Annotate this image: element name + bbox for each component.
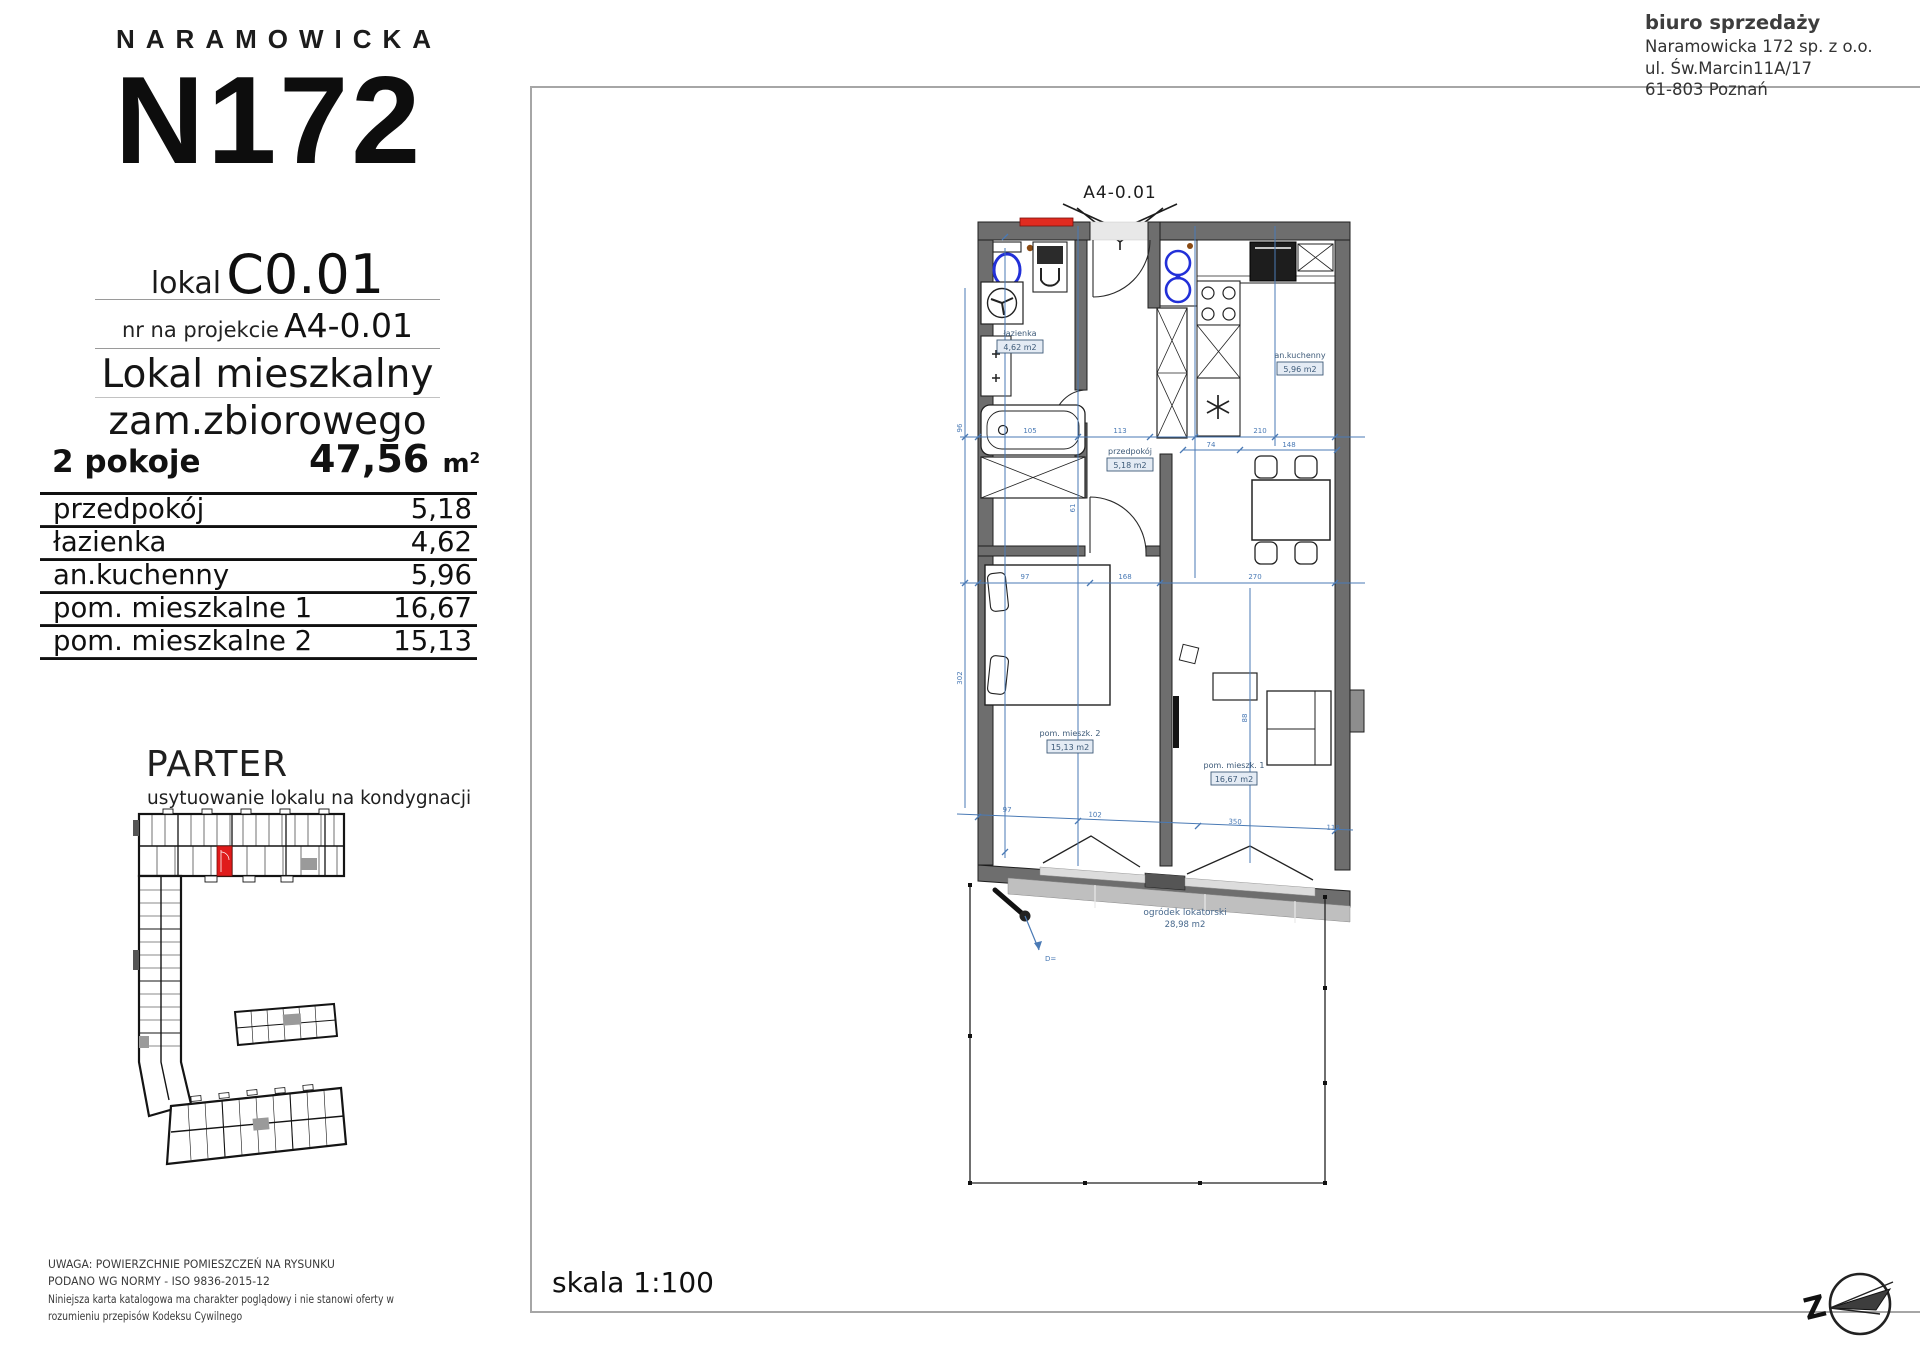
table-row: pom. mieszkalne 1 16,67 <box>40 594 477 627</box>
compass-letter: Z <box>1800 1289 1830 1328</box>
valve-dot <box>1187 243 1193 249</box>
window-pier <box>1145 873 1185 890</box>
unit-number-line: lokal C0.01 <box>95 243 440 306</box>
entrance-marker-label: A4-0.01 <box>1083 183 1156 203</box>
svg-text:119: 119 <box>1326 824 1340 833</box>
compass: Z <box>1800 1262 1910 1352</box>
building-location-minimap <box>133 800 348 1172</box>
table-row: pom. mieszkalne 2 15,13 <box>40 627 477 660</box>
table-row: przedpokój 5,18 <box>40 495 477 528</box>
kitchen-fixtures <box>1157 240 1335 438</box>
chair-icon <box>1255 456 1277 478</box>
brand-name: NARAMOWICKA <box>116 24 446 55</box>
svg-text:5,18 m2: 5,18 m2 <box>1113 461 1146 470</box>
office-street: ul. Św.Marcin11A/17 <box>1645 58 1873 80</box>
chair-icon <box>1255 542 1277 564</box>
divider <box>95 299 440 300</box>
room-area: 5,96 <box>411 561 472 589</box>
svg-text:88: 88 <box>1241 714 1249 723</box>
disclaimer-line: rozumieniu przepisów Kodeksu Cywilnego <box>48 1308 320 1325</box>
svg-text:102: 102 <box>1088 811 1102 820</box>
project-number-label: nr na projekcie <box>122 318 279 342</box>
bathroom-fixtures <box>981 242 1085 498</box>
disclaimer-line: UWAGA: POWIERZCHNIE POMIESZCZEŃ NA RYSUN… <box>48 1256 364 1273</box>
room1-label: pom. mieszk. 1 16,67 m2 <box>1204 761 1265 785</box>
hall-label: przedpokój 5,18 m2 <box>1107 446 1153 471</box>
room-door <box>1090 497 1146 553</box>
svg-text:61: 61 <box>1069 504 1077 513</box>
frame-left-border <box>530 86 532 1313</box>
area-unit-sup: 2 <box>470 449 480 467</box>
svg-text:an.kuchenny: an.kuchenny <box>1274 351 1326 360</box>
divider <box>95 348 440 349</box>
room-name: pom. mieszkalne 1 <box>53 594 312 622</box>
svg-text:350: 350 <box>1228 818 1242 827</box>
svg-text:270: 270 <box>1248 573 1261 581</box>
svg-text:4,62 m2: 4,62 m2 <box>1003 343 1036 352</box>
kitchen-label: an.kuchenny 5,96 m2 <box>1274 351 1326 375</box>
chair-icon <box>1295 542 1317 564</box>
window-opening-mark <box>1043 836 1140 867</box>
svg-text:97: 97 <box>1021 573 1030 581</box>
office-title: biuro sprzedaży <box>1645 10 1873 36</box>
balcony-divider <box>1350 690 1364 732</box>
room2-furniture <box>985 565 1110 705</box>
stool-icon <box>1179 644 1198 663</box>
project-number-line: nr na projekcie A4-0.01 <box>95 306 440 345</box>
compass-needle-icon <box>1830 1289 1890 1310</box>
sofa-icon <box>1267 691 1331 765</box>
frame-bottom-border <box>530 1311 1920 1313</box>
building-logo: N172 <box>96 58 442 184</box>
valve-dot <box>1027 245 1033 251</box>
entrance-door <box>1093 240 1150 297</box>
project-number-value: A4-0.01 <box>284 306 413 345</box>
svg-text:łazienka: łazienka <box>1004 329 1037 338</box>
office-city: 61-803 Poznań <box>1645 79 1873 101</box>
fence-posts <box>968 883 1327 1185</box>
minimap-unit-highlight <box>217 846 232 876</box>
svg-text:105: 105 <box>1023 427 1036 435</box>
total-area: 47,56 m2 <box>309 437 480 481</box>
room2-label: pom. mieszk. 2 15,13 m2 <box>1040 729 1101 753</box>
garden-fence <box>970 885 1325 1183</box>
entrance-threshold <box>1090 222 1150 240</box>
garden-area: 28,98 m2 <box>1165 920 1206 930</box>
pillow-icon <box>987 655 1009 695</box>
pillow-icon <box>987 572 1009 612</box>
bathroom-label: łazienka 4,62 m2 <box>997 329 1043 353</box>
dining-set <box>1252 456 1330 564</box>
catalog-card-page: NARAMOWICKA N172 lokal C0.01 nr na proje… <box>0 0 1920 1357</box>
svg-text:przedpokój: przedpokój <box>1108 446 1152 456</box>
garden-label: ogródek lokatorski <box>1143 907 1226 918</box>
room-areas-table: przedpokój 5,18 łazienka 4,62 an.kuchenn… <box>40 492 477 660</box>
svg-text:16,67 m2: 16,67 m2 <box>1215 775 1253 784</box>
scale-label: skala 1:100 <box>552 1266 714 1299</box>
divider <box>95 397 440 398</box>
svg-text:5,96 m2: 5,96 m2 <box>1283 365 1316 374</box>
svg-text:302: 302 <box>956 671 964 684</box>
svg-text:97: 97 <box>1002 806 1011 814</box>
toilet-icon <box>994 254 1020 286</box>
disclaimer-line: Niniejsza karta katalogowa ma charakter … <box>48 1291 320 1308</box>
svg-text:pom. mieszk. 1: pom. mieszk. 1 <box>1204 761 1265 770</box>
room-area: 16,67 <box>393 594 472 622</box>
svg-text:113: 113 <box>1113 427 1126 435</box>
room-name: przedpokój <box>53 495 204 523</box>
svg-text:74: 74 <box>1207 441 1216 449</box>
room-area: 4,62 <box>411 528 472 556</box>
room-name: an.kuchenny <box>53 561 229 589</box>
svg-text:168: 168 <box>1118 573 1131 581</box>
unit-type-line1: Lokal mieszkalny <box>95 352 440 397</box>
table-icon <box>1252 480 1330 540</box>
area-unit: m <box>442 449 469 479</box>
disclaimer-line: PODANO WG NORMY - ISO 9836-2015-12 <box>48 1273 364 1290</box>
office-company: Naramowicka 172 sp. z o.o. <box>1645 36 1873 58</box>
tv-icon <box>1173 696 1179 748</box>
toilet-tank <box>993 242 1021 252</box>
apartment-floor-plan: A4-0.01 <box>945 178 1375 1223</box>
room1-furniture <box>1173 644 1331 765</box>
downspout-label: D= <box>1045 955 1056 963</box>
unit-number-value: C0.01 <box>226 243 384 306</box>
radiator-accent <box>1020 218 1073 226</box>
table-row: łazienka 4,62 <box>40 528 477 561</box>
legal-disclaimer: UWAGA: POWIERZCHNIE POMIESZCZEŃ NA RYSUN… <box>48 1256 388 1326</box>
svg-text:96: 96 <box>956 423 964 432</box>
table-row: an.kuchenny 5,96 <box>40 561 477 594</box>
room-area: 5,18 <box>411 495 472 523</box>
rooms-area-summary: 2 pokoje 47,56 m2 <box>52 437 480 481</box>
room-name: pom. mieszkalne 2 <box>53 627 312 655</box>
garden: ogródek lokatorski 28,98 m2 D= <box>968 883 1327 1185</box>
rooms-count: 2 pokoje <box>52 444 201 480</box>
chair-icon <box>1295 456 1317 478</box>
svg-text:148: 148 <box>1282 441 1295 449</box>
room-name: łazienka <box>53 528 166 556</box>
sales-office-block: biuro sprzedaży Naramowicka 172 sp. z o.… <box>1645 10 1873 101</box>
floor-name: PARTER <box>146 744 288 785</box>
svg-text:pom. mieszk. 2: pom. mieszk. 2 <box>1040 729 1101 738</box>
downspout-icon: D= <box>995 890 1056 963</box>
room-area: 15,13 <box>393 627 472 655</box>
svg-text:15,13 m2: 15,13 m2 <box>1051 743 1089 752</box>
unit-number-label: lokal <box>151 266 221 301</box>
svg-text:210: 210 <box>1253 427 1266 435</box>
